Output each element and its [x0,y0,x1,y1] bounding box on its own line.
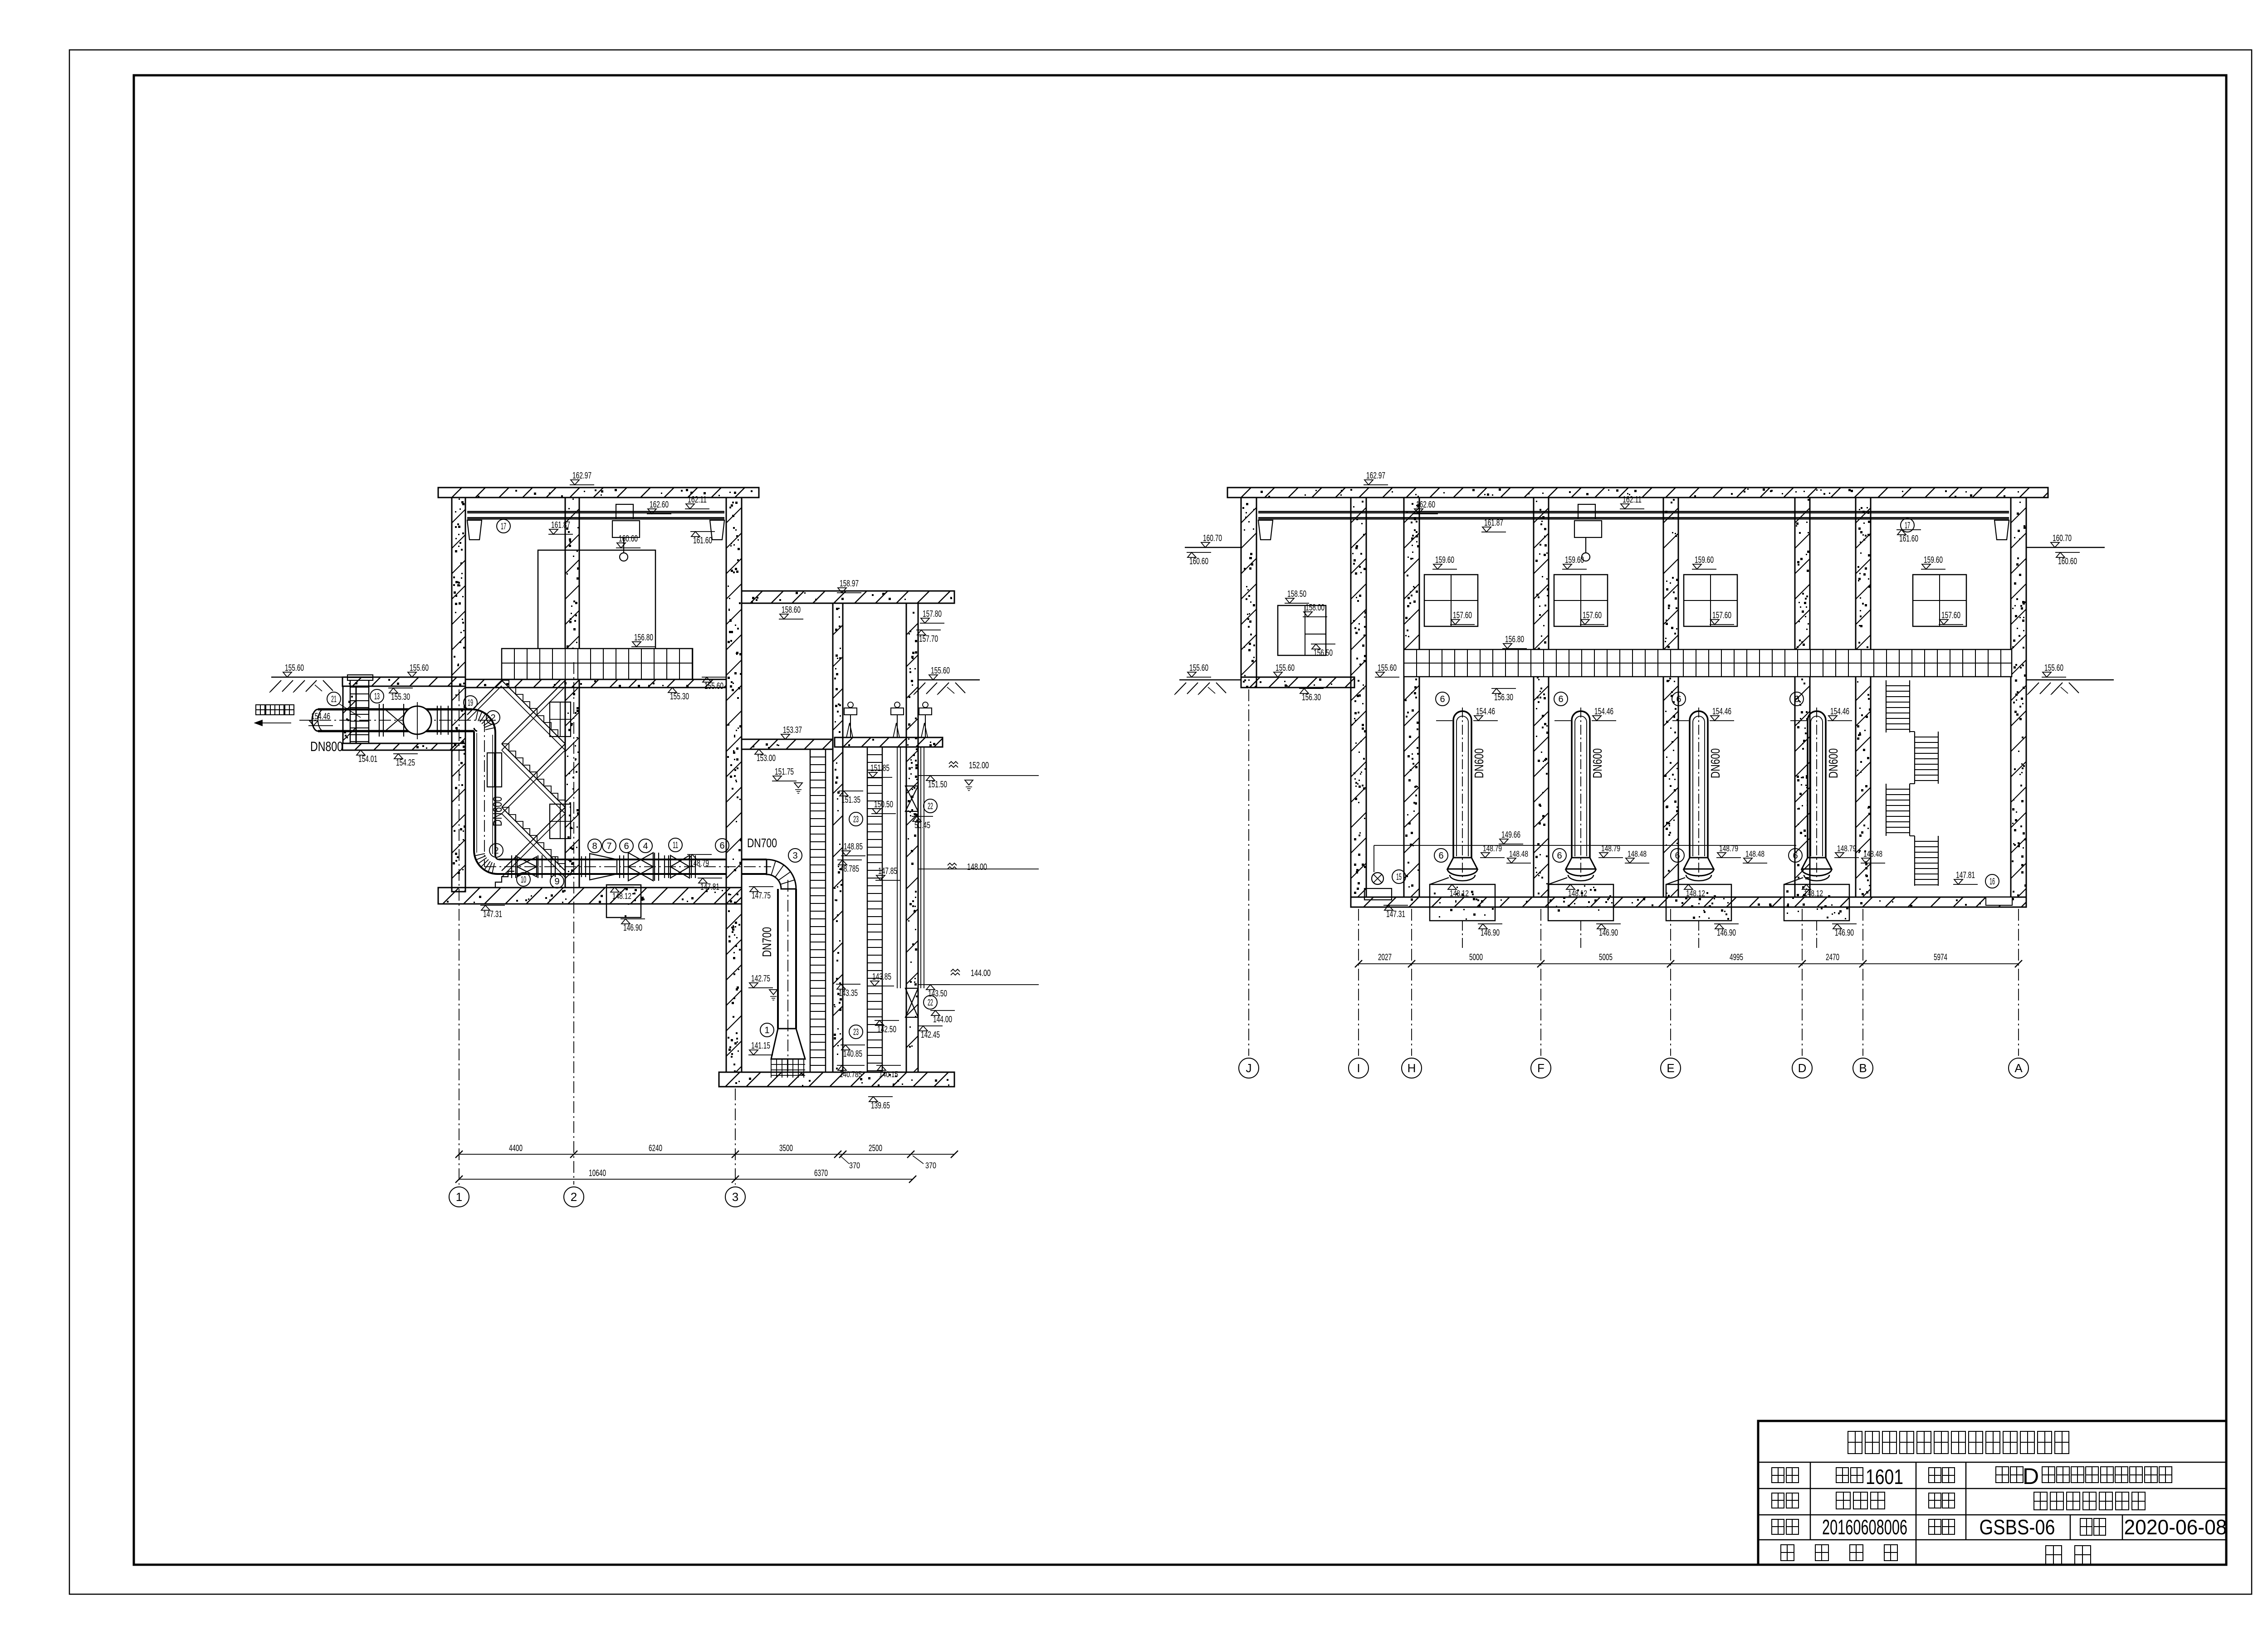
svg-text:148.12: 148.12 [1686,889,1705,898]
svg-text:147.31: 147.31 [483,909,502,919]
svg-text:A: A [2014,1061,2023,1075]
svg-text:152.00: 152.00 [969,761,989,771]
svg-text:17: 17 [1905,521,1910,531]
svg-text:3: 3 [792,851,797,861]
svg-text:143.35: 143.35 [839,988,858,998]
svg-text:11: 11 [673,840,678,850]
svg-text:148.79: 148.79 [1601,844,1620,853]
svg-text:2500: 2500 [869,1143,882,1153]
svg-text:2027: 2027 [1378,952,1392,962]
svg-text:161.60: 161.60 [1899,534,1918,544]
svg-text:161.60: 161.60 [693,536,712,546]
svg-text:154.46: 154.46 [1476,707,1495,717]
svg-text:157.80: 157.80 [923,609,942,619]
svg-text:155.60: 155.60 [410,663,429,673]
svg-text:146.90: 146.90 [1481,928,1500,938]
svg-text:159.60: 159.60 [1565,555,1584,565]
svg-text:1: 1 [456,1190,462,1204]
svg-text:160.70: 160.70 [1203,533,1222,543]
svg-text:146.90: 146.90 [1717,928,1736,938]
svg-text:6: 6 [1675,851,1680,861]
svg-text:156.80: 156.80 [1505,635,1524,644]
svg-text:148.79: 148.79 [1837,844,1856,853]
svg-text:13: 13 [374,692,380,702]
svg-text:6240: 6240 [649,1143,662,1153]
svg-text:50.45: 50.45 [914,820,930,830]
svg-text:146.90: 146.90 [1599,928,1618,938]
svg-text:3500: 3500 [779,1143,793,1153]
svg-text:154.46: 154.46 [1830,707,1849,717]
svg-text:4995: 4995 [1730,952,1743,962]
svg-text:2470: 2470 [1826,952,1839,962]
svg-text:155.30: 155.30 [670,692,689,702]
svg-text:157.60: 157.60 [1941,610,1960,620]
svg-text:156.80: 156.80 [634,633,653,643]
svg-text:2: 2 [494,846,499,856]
svg-text:153.00: 153.00 [757,753,776,763]
svg-text:5005: 5005 [1599,952,1613,962]
svg-text:157.60: 157.60 [1712,610,1731,620]
svg-text:154.46: 154.46 [311,712,330,722]
svg-text:6: 6 [1794,694,1799,704]
svg-text:4: 4 [643,841,648,851]
svg-text:154.46: 154.46 [1594,707,1613,717]
svg-text:9: 9 [554,877,559,887]
svg-text:7: 7 [606,841,611,851]
svg-text:F: F [1537,1061,1545,1075]
svg-text:158.50: 158.50 [1287,589,1306,599]
svg-text:DN600: DN600 [1590,748,1604,778]
svg-text:48.785: 48.785 [840,864,859,874]
svg-text:158.00: 158.00 [1305,603,1325,613]
svg-text:148.85: 148.85 [844,842,863,852]
svg-text:20160608006: 20160608006 [1822,1515,1907,1539]
svg-text:6: 6 [1440,694,1445,704]
svg-text:143.85: 143.85 [872,972,891,982]
svg-text:147.81: 147.81 [1956,870,1975,880]
svg-text:140.15: 140.15 [879,1070,898,1079]
svg-text:148.48: 148.48 [1863,849,1882,859]
svg-text:147.85: 147.85 [878,866,897,876]
svg-text:16: 16 [1989,877,1995,887]
svg-text:147.81: 147.81 [700,882,719,892]
svg-text:H: H [1408,1061,1416,1075]
svg-text:147.75: 147.75 [752,891,771,901]
svg-text:155.30: 155.30 [391,692,410,702]
svg-text:DN700: DN700 [747,836,777,850]
svg-text:2: 2 [490,713,495,723]
svg-text:GSBS-06: GSBS-06 [1980,1515,2055,1539]
svg-text:153.37: 153.37 [783,725,802,735]
svg-text:6: 6 [1557,851,1562,861]
svg-text:6: 6 [1438,851,1443,861]
svg-text:1: 1 [764,1025,769,1035]
svg-text:155.60: 155.60 [704,681,723,691]
svg-text:370: 370 [925,1161,936,1170]
svg-text:D: D [2023,1464,2039,1489]
svg-text:17: 17 [501,522,506,532]
svg-text:142.45: 142.45 [921,1030,940,1040]
svg-text:DN700: DN700 [760,927,774,957]
svg-text:148.79: 148.79 [690,859,709,869]
svg-text:148.12: 148.12 [1568,889,1587,898]
svg-text:DN600: DN600 [1472,748,1486,778]
svg-text:148.48: 148.48 [1509,849,1528,859]
svg-text:8: 8 [592,841,597,851]
svg-text:142.75: 142.75 [751,974,770,984]
svg-text:6: 6 [1793,851,1798,861]
svg-text:162.11: 162.11 [688,495,707,505]
svg-text:157.70: 157.70 [919,634,938,644]
svg-text:23: 23 [853,1027,859,1037]
svg-text:DN600: DN600 [1708,748,1722,778]
svg-text:141.15: 141.15 [751,1041,770,1051]
svg-text:159.60: 159.60 [1695,555,1714,565]
svg-text:154.01: 154.01 [358,754,377,764]
svg-text:151.50: 151.50 [928,780,947,790]
svg-text:160.60: 160.60 [1189,556,1208,566]
svg-text:162.97: 162.97 [1366,471,1385,481]
svg-text:23: 23 [853,815,859,825]
svg-text:22: 22 [928,801,933,811]
svg-text:149.66: 149.66 [1501,830,1520,840]
svg-text:142.50: 142.50 [877,1025,896,1035]
svg-text:160.60: 160.60 [619,534,638,544]
svg-text:154.46: 154.46 [1712,707,1731,717]
svg-text:162.11: 162.11 [1623,495,1642,505]
svg-text:160.70: 160.70 [2053,533,2072,543]
svg-text:156.50: 156.50 [1314,648,1333,658]
svg-text:157.60: 157.60 [1453,610,1472,620]
svg-text:21: 21 [331,694,337,704]
svg-text:10: 10 [521,875,526,885]
svg-text:140.785: 140.785 [840,1070,862,1079]
svg-text:159.60: 159.60 [1435,555,1454,565]
svg-text:156.30: 156.30 [1302,693,1321,703]
svg-text:10640: 10640 [589,1168,606,1178]
svg-text:160.60: 160.60 [2058,556,2077,566]
svg-text:159.60: 159.60 [1924,555,1943,565]
svg-text:144.00: 144.00 [971,968,991,978]
svg-text:155.60: 155.60 [1276,663,1295,673]
svg-text:148.48: 148.48 [1745,849,1765,859]
svg-text:5000: 5000 [1469,952,1483,962]
svg-text:151.85: 151.85 [870,763,890,773]
svg-text:5974: 5974 [1934,952,1947,962]
svg-text:22: 22 [928,998,933,1008]
svg-text:6: 6 [719,841,724,851]
svg-text:146.90: 146.90 [623,923,642,933]
svg-text:148.12: 148.12 [1450,889,1469,898]
svg-text:144.00: 144.00 [933,1015,952,1025]
svg-text:161.87: 161.87 [1484,518,1503,528]
svg-text:370: 370 [849,1161,860,1170]
svg-text:139.65: 139.65 [871,1101,890,1111]
svg-text:6370: 6370 [814,1168,828,1178]
svg-text:148.00: 148.00 [967,862,987,872]
svg-text:150.50: 150.50 [874,800,893,810]
svg-text:158.60: 158.60 [782,605,801,615]
svg-text:162.60: 162.60 [650,500,669,510]
svg-text:155.60: 155.60 [1378,663,1397,673]
svg-text:143.50: 143.50 [928,989,947,999]
svg-text:151.35: 151.35 [841,795,860,805]
svg-text:15: 15 [1396,872,1402,882]
svg-text:157.60: 157.60 [1583,610,1602,620]
svg-text:155.60: 155.60 [285,663,304,673]
svg-text:I: I [1357,1061,1360,1075]
svg-text:2: 2 [571,1190,577,1204]
svg-text:148.79: 148.79 [1483,844,1502,853]
svg-text:147.31: 147.31 [1386,909,1405,919]
svg-text:DN600: DN600 [490,796,504,826]
svg-text:148.12: 148.12 [612,892,631,901]
svg-text:158.97: 158.97 [840,579,859,589]
svg-text:DN800: DN800 [310,739,343,754]
svg-text:148.12: 148.12 [1804,889,1823,898]
svg-text:J: J [1246,1061,1252,1075]
svg-text:156.30: 156.30 [1494,693,1513,703]
svg-text:6: 6 [1558,694,1563,704]
svg-text:6: 6 [1676,694,1681,704]
svg-text:151.75: 151.75 [775,767,794,777]
svg-text:140.85: 140.85 [843,1049,862,1059]
svg-text:162.97: 162.97 [572,471,591,481]
svg-text:154.25: 154.25 [396,758,415,768]
svg-text:1601: 1601 [1866,1465,1903,1489]
svg-text:155.60: 155.60 [1189,663,1208,673]
svg-text:161.87: 161.87 [551,520,570,530]
svg-text:19: 19 [468,698,473,708]
svg-text:148.79: 148.79 [1719,844,1738,853]
svg-text:148.48: 148.48 [1628,849,1647,859]
svg-text:155.60: 155.60 [931,666,950,676]
svg-text:146.90: 146.90 [1835,928,1854,938]
svg-text:3: 3 [732,1190,738,1204]
svg-text:2020-06-08: 2020-06-08 [2124,1515,2227,1539]
svg-text:6: 6 [624,841,629,851]
svg-text:4400: 4400 [509,1143,523,1153]
svg-text:D: D [1798,1061,1807,1075]
svg-text:E: E [1667,1061,1674,1075]
svg-text:155.60: 155.60 [2044,663,2063,673]
svg-text:162.60: 162.60 [1416,500,1435,510]
svg-text:DN600: DN600 [1826,748,1840,778]
svg-text:B: B [1859,1061,1867,1075]
